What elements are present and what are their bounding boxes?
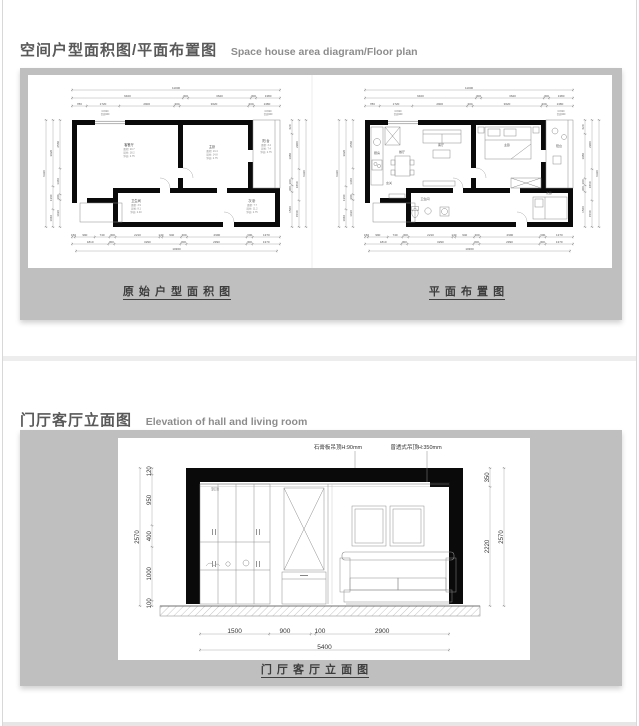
svg-text:1360: 1360 [49,194,53,201]
caption-elevation: 门 厅 客 厅 立 面 图 [215,661,415,677]
svg-text:140: 140 [158,233,163,237]
svg-text:玄关: 玄关 [386,180,392,185]
svg-text:300: 300 [542,102,547,106]
svg-text:2990: 2990 [506,240,513,244]
svg-text:1370: 1370 [556,233,563,237]
svg-text:主卧: 主卧 [504,142,510,147]
svg-text:3620: 3620 [509,94,516,98]
svg-text:3920: 3920 [49,150,53,157]
title-chinese: 空间户型面积图/平面布置图 [20,42,217,59]
svg-text:620: 620 [288,124,292,129]
svg-text:1560: 1560 [295,210,299,217]
slide-separator [3,356,636,361]
svg-text:1370: 1370 [263,233,270,237]
svg-text:1040: 1040 [342,215,346,222]
svg-text:1560: 1560 [581,206,585,213]
svg-text:净高: 2.75: 净高: 2.75 [260,150,272,154]
svg-text:900: 900 [279,628,290,635]
svg-text:300: 300 [540,233,545,237]
svg-text:400: 400 [147,531,153,542]
svg-text:300: 300 [475,233,480,237]
caption-layout-plan: 平 面 布 置 图 [367,283,567,299]
svg-text:2900: 2900 [375,628,390,635]
floorplan-svg: 1100064003003620300138078017202900300362… [28,75,612,268]
svg-text:1040: 1040 [49,215,53,222]
svg-text:3290: 3290 [437,240,444,244]
svg-text:940: 940 [462,233,467,237]
svg-text:940: 940 [169,233,174,237]
svg-text:6320: 6320 [42,170,46,177]
svg-text:2210: 2210 [134,233,141,237]
svg-text:120: 120 [147,466,153,477]
svg-text:3620: 3620 [504,102,511,106]
svg-text:300: 300 [110,233,115,237]
svg-text:厨房: 厨房 [374,150,380,155]
svg-text:1430: 1430 [349,210,353,217]
svg-text:面积: 7.7: 面积: 7.7 [247,203,257,207]
svg-text:100: 100 [147,598,153,609]
svg-text:2990: 2990 [213,240,220,244]
svg-text:2560: 2560 [349,141,353,148]
svg-text:面积: 20.7: 面积: 20.7 [123,147,135,151]
svg-text:周长: 8.1: 周长: 8.1 [131,206,141,210]
svg-text:2900: 2900 [436,102,443,106]
svg-text:3620: 3620 [216,94,223,98]
elevation-svg: 到顶石膏板吊顶H:90mm曾透式吊顶H:350mm120950400100010… [118,438,530,660]
svg-text:2210: 2210 [427,233,434,237]
svg-text:1860: 1860 [295,181,299,188]
svg-text:300: 300 [251,94,256,98]
title-chinese: 门厅客厅立面图 [20,412,132,429]
svg-text:300: 300 [288,179,292,184]
svg-text:1380: 1380 [265,94,272,98]
svg-text:1360: 1360 [56,178,60,185]
svg-text:1560: 1560 [588,210,592,217]
svg-text:台高900: 台高900 [101,112,110,116]
svg-text:1810: 1810 [87,240,94,244]
title-english: Space house area diagram/Floor plan [231,46,418,58]
svg-text:300: 300 [174,102,179,106]
svg-text:350: 350 [485,472,491,483]
svg-text:1380: 1380 [557,102,564,106]
svg-text:1720: 1720 [393,102,400,106]
svg-text:2570: 2570 [499,530,505,544]
svg-text:2990: 2990 [214,233,221,237]
svg-text:300: 300 [349,194,353,199]
svg-text:阳台: 阳台 [556,143,562,148]
svg-text:300: 300 [467,102,472,106]
svg-text:6320: 6320 [335,170,339,177]
svg-text:990: 990 [375,233,380,237]
svg-text:300: 300 [540,240,545,244]
svg-text:10360: 10360 [172,247,181,251]
svg-text:300: 300 [402,240,407,244]
svg-text:6400: 6400 [124,94,131,98]
svg-text:面积: 3.4: 面积: 3.4 [261,143,271,147]
svg-text:周长: 7.4: 周长: 7.4 [261,146,271,150]
svg-text:1380: 1380 [264,102,271,106]
floorplan-image: 1100064003003620300138078017202900300362… [28,75,612,268]
svg-text:300: 300 [182,233,187,237]
svg-text:5400: 5400 [317,644,332,651]
svg-text:990: 990 [82,233,87,237]
svg-text:3620: 3620 [211,102,218,106]
svg-text:到顶: 到顶 [211,486,219,492]
svg-text:300: 300 [181,240,186,244]
svg-text:1980: 1980 [581,153,585,160]
svg-text:1370: 1370 [263,240,270,244]
svg-text:1380: 1380 [558,94,565,98]
svg-text:300: 300 [581,179,585,184]
svg-text:面积: 13.4: 面积: 13.4 [206,149,218,153]
svg-text:净高: 2.75: 净高: 2.75 [246,210,258,214]
svg-text:150: 150 [71,233,76,237]
svg-text:次卧: 次卧 [546,190,552,195]
document-page: 空间户型面积图/平面布置图 Space house area diagram/F… [0,0,639,726]
svg-text:净高: 2.75: 净高: 2.75 [123,154,135,158]
svg-text:净高: 2.40: 净高: 2.40 [130,210,142,214]
svg-text:卫生间: 卫生间 [420,196,429,201]
svg-text:1720: 1720 [100,102,107,106]
svg-text:1370: 1370 [556,240,563,244]
svg-text:620: 620 [581,124,585,129]
section-title-floorplans: 空间户型面积图/平面布置图 Space house area diagram/F… [20,34,418,62]
svg-text:6320: 6320 [302,170,306,177]
svg-text:3290: 3290 [144,240,151,244]
svg-text:1810: 1810 [380,240,387,244]
svg-text:300: 300 [249,102,254,106]
svg-text:150: 150 [364,233,369,237]
svg-text:100: 100 [315,628,326,635]
svg-text:周长: 14.8: 周长: 14.8 [206,152,218,156]
svg-text:周长: 11.2: 周长: 11.2 [246,206,258,210]
svg-text:6400: 6400 [417,94,424,98]
svg-text:台高900: 台高900 [394,112,403,116]
svg-text:780: 780 [77,102,82,106]
svg-text:1360: 1360 [342,194,346,201]
svg-text:300: 300 [581,186,585,191]
svg-text:台高900: 台高900 [557,112,566,116]
section-title-elevation: 门厅客厅立面图 Elevation of hall and living roo… [20,404,307,432]
svg-text:2900: 2900 [588,141,592,148]
svg-text:2900: 2900 [143,102,150,106]
svg-text:300: 300 [56,194,60,199]
svg-text:台高900: 台高900 [264,112,273,116]
svg-text:6320: 6320 [595,170,599,177]
svg-text:300: 300 [247,233,252,237]
svg-text:餐厅: 餐厅 [399,149,405,154]
svg-text:1430: 1430 [56,210,60,217]
svg-text:300: 300 [544,94,549,98]
svg-text:2570: 2570 [135,530,141,544]
svg-text:卫生间: 卫生间 [131,198,141,203]
svg-text:客厅: 客厅 [438,142,444,147]
svg-text:740: 740 [100,233,105,237]
svg-text:1000: 1000 [147,566,153,580]
svg-text:11000: 11000 [465,86,473,90]
svg-text:300: 300 [476,94,481,98]
svg-text:阳 台: 阳 台 [262,138,269,143]
svg-text:3920: 3920 [342,150,346,157]
svg-text:300: 300 [474,240,479,244]
next-slide-edge [3,722,636,726]
svg-text:740: 740 [393,233,398,237]
title-english: Elevation of hall and living room [146,416,308,428]
svg-text:300: 300 [247,240,252,244]
svg-text:曾透式吊顶H:350mm: 曾透式吊顶H:350mm [390,443,442,451]
svg-text:300: 300 [109,240,114,244]
elevation-panel: 到顶石膏板吊顶H:90mm曾透式吊顶H:350mm120950400100010… [20,430,622,686]
svg-text:1500: 1500 [227,628,242,635]
svg-text:面积: 3.9: 面积: 3.9 [131,203,141,207]
svg-text:2560: 2560 [56,141,60,148]
svg-text:客餐厅: 客餐厅 [124,142,134,147]
svg-text:300: 300 [288,186,292,191]
page-edge-right [636,0,637,726]
page-edge-left [2,0,3,726]
svg-text:10360: 10360 [465,247,474,251]
svg-text:1980: 1980 [288,153,292,160]
svg-text:主卧: 主卧 [209,144,216,149]
svg-text:780: 780 [370,102,375,106]
svg-text:300: 300 [403,233,408,237]
caption-original-plan: 原 始 户 型 面 积 图 [77,283,277,299]
svg-text:2220: 2220 [485,539,491,553]
svg-text:300: 300 [183,94,188,98]
svg-text:1560: 1560 [288,206,292,213]
svg-text:140: 140 [451,233,456,237]
elevation-image: 到顶石膏板吊顶H:90mm曾透式吊顶H:350mm120950400100010… [118,438,530,660]
floorplan-panel: 1100064003003620300138078017202900300362… [20,68,622,320]
svg-text:11000: 11000 [172,86,180,90]
svg-text:1360: 1360 [349,178,353,185]
svg-text:周长: 18.2: 周长: 18.2 [123,150,135,154]
svg-text:1860: 1860 [588,181,592,188]
svg-text:净高: 2.75: 净高: 2.75 [206,156,218,160]
svg-text:2990: 2990 [507,233,514,237]
svg-text:950: 950 [147,494,153,505]
svg-text:石膏板吊顶H:90mm: 石膏板吊顶H:90mm [314,443,363,451]
svg-text:2900: 2900 [295,141,299,148]
svg-text:次 卧: 次 卧 [248,198,256,203]
